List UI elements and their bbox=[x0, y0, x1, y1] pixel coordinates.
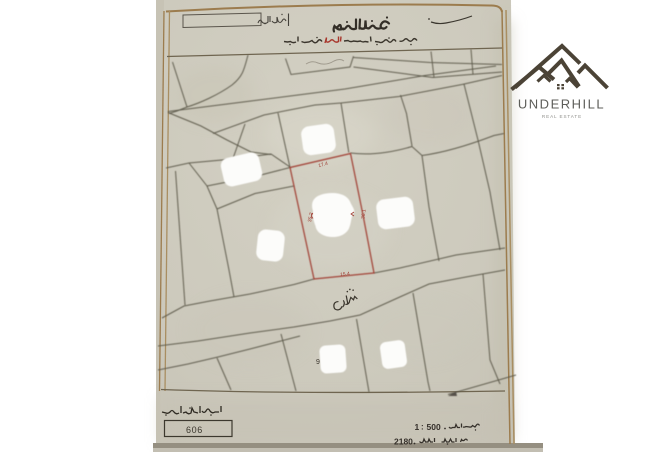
svg-text:REAL ESTATE: REAL ESTATE bbox=[542, 114, 582, 119]
svg-text:2180: 2180 bbox=[394, 437, 413, 447]
svg-text:1: 1 bbox=[415, 422, 420, 432]
svg-text::: : bbox=[421, 423, 424, 432]
svg-text:606: 606 bbox=[186, 425, 203, 435]
svg-text:UNDERHILL: UNDERHILL bbox=[518, 97, 605, 112]
svg-text:500: 500 bbox=[427, 422, 441, 432]
svg-text:15.4: 15.4 bbox=[340, 271, 351, 278]
svg-text:9: 9 bbox=[316, 359, 320, 366]
